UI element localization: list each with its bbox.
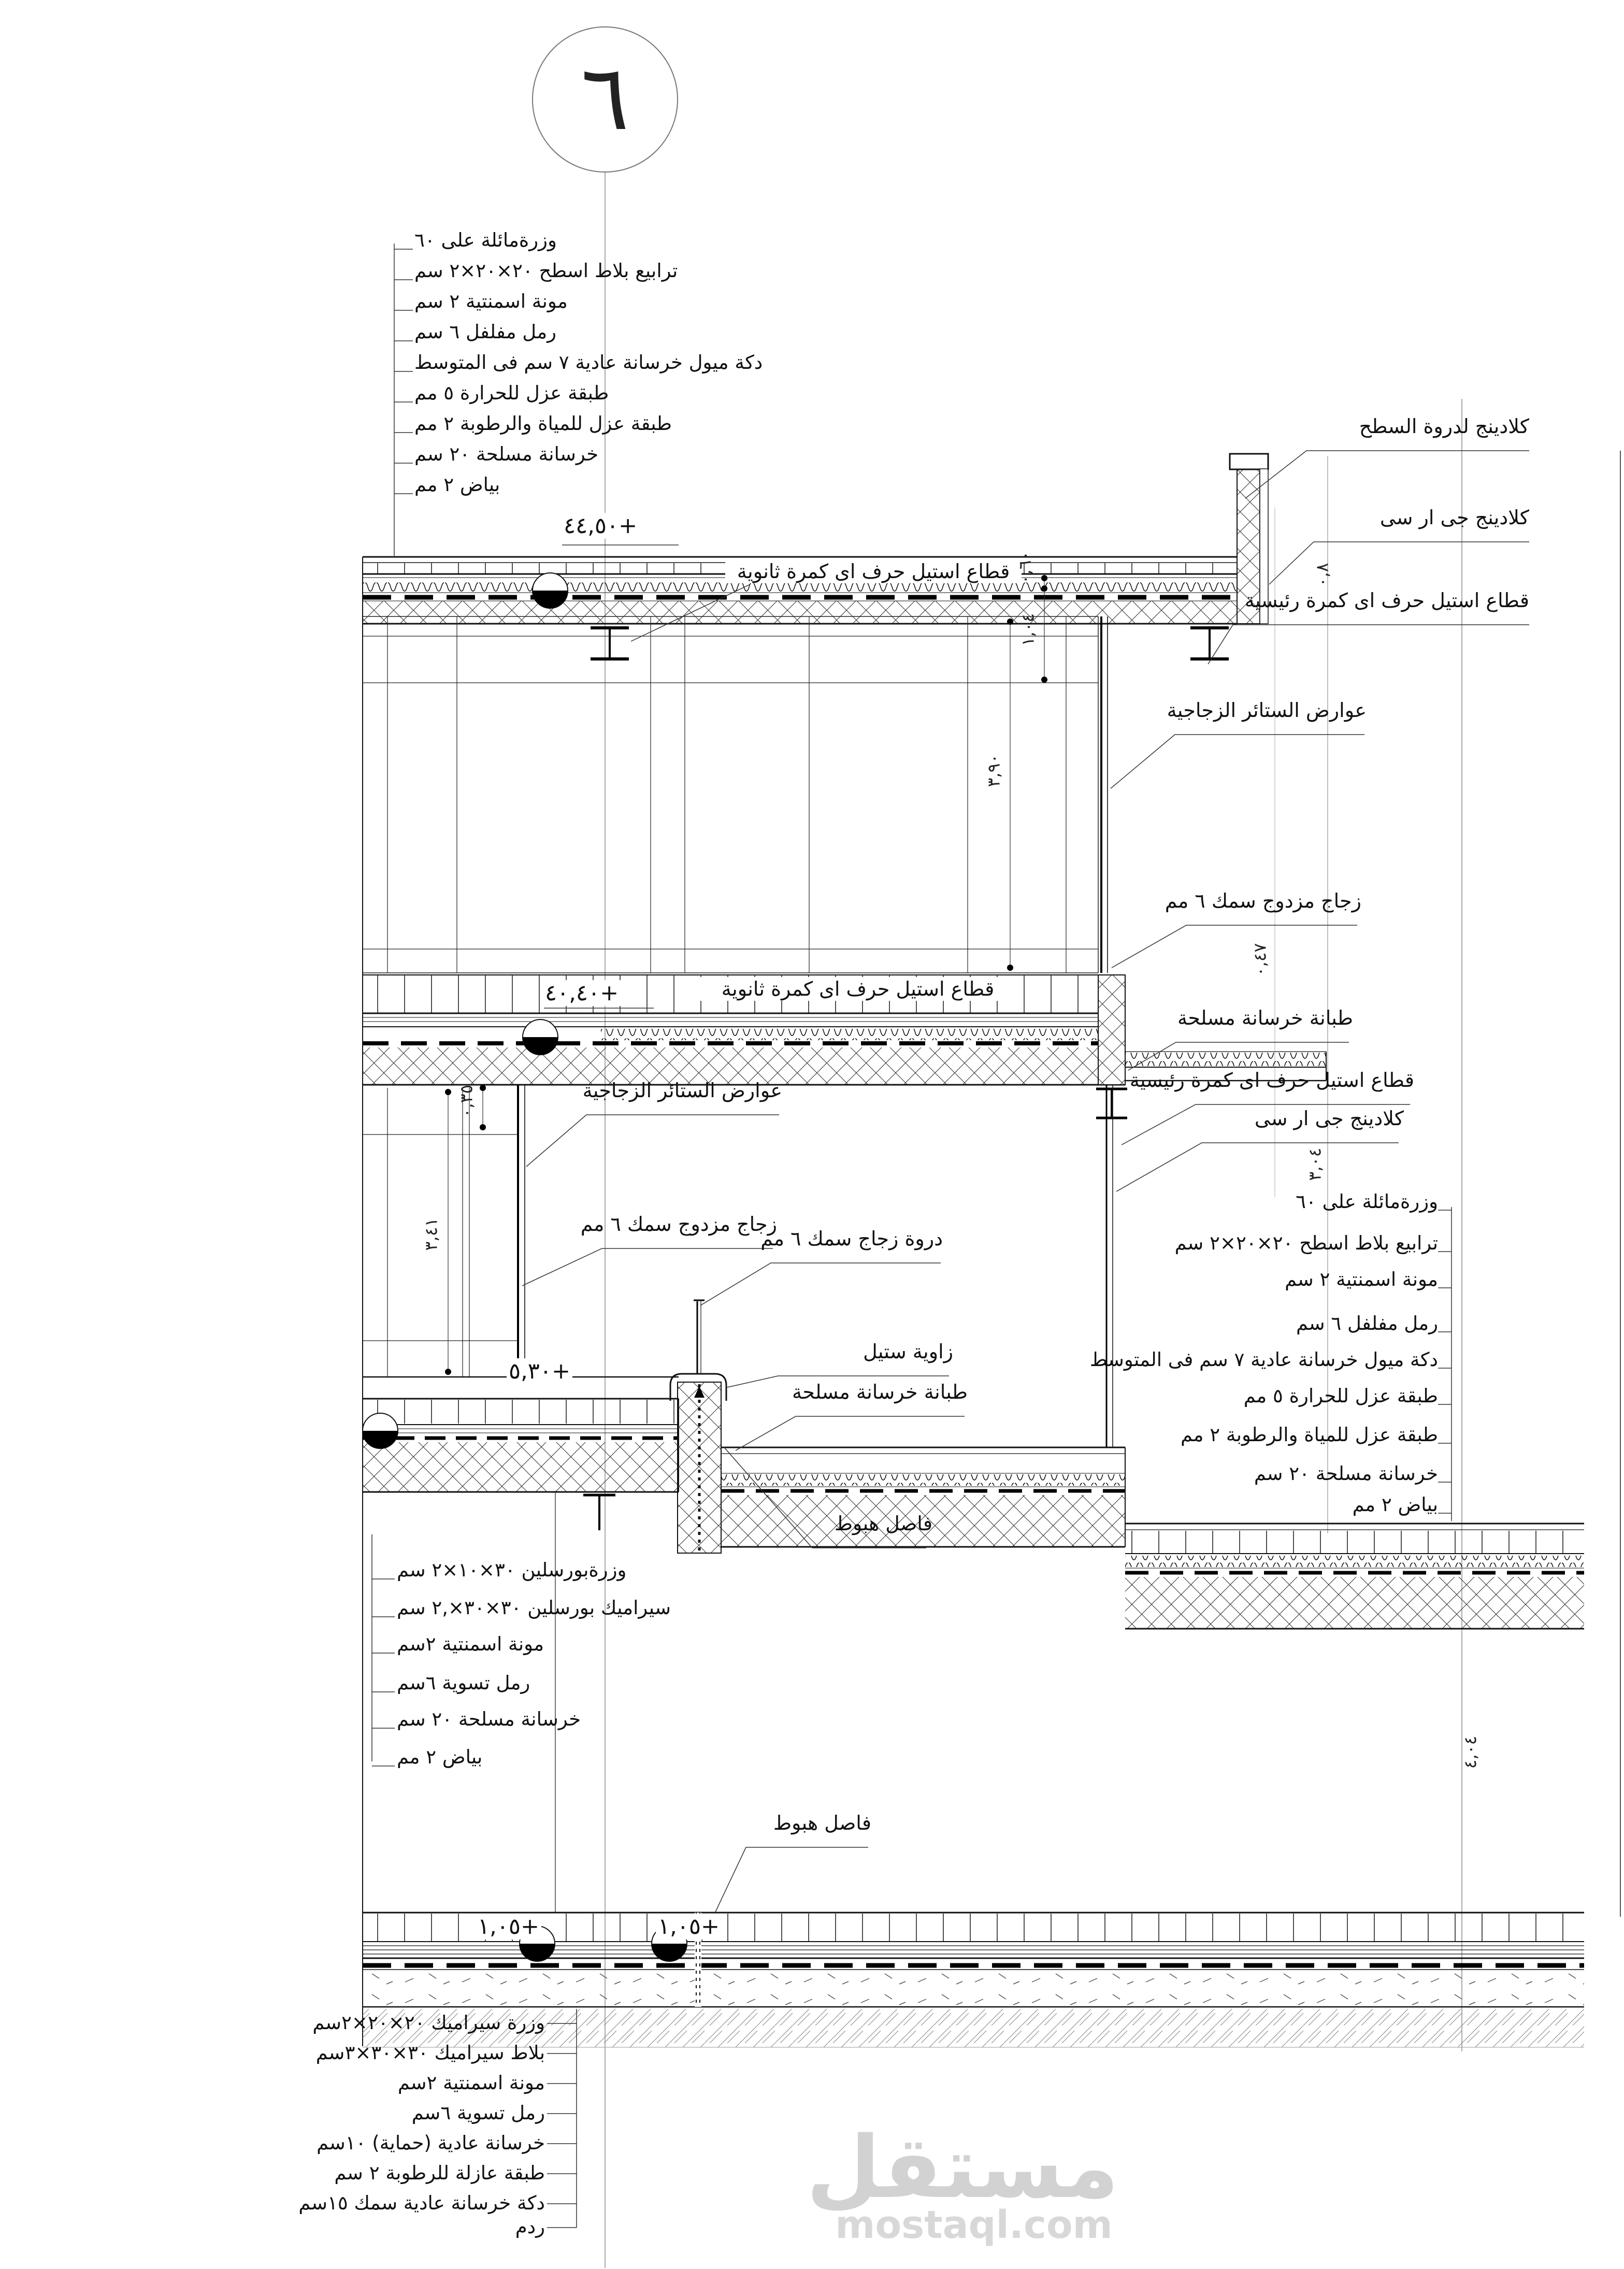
- level-ground-a: ١,٠٥+: [476, 1914, 541, 1940]
- roof-steel-beams: [591, 628, 1229, 659]
- roof-layer-line: طبقة عزل للمياة والرطوبة ٢ مم: [414, 412, 672, 435]
- ground-layer-line: رمل تسوية ٦سم: [255, 2102, 545, 2124]
- callout-mullions-roof: عوارض الستائر الزجاجية: [1159, 698, 1367, 722]
- roof-layer-line: رمل مفلفل ٦ سم: [414, 321, 556, 343]
- roof-layer-line: مونة اسمنتية ٢ سم: [414, 290, 568, 313]
- ground-layer-line: مونة اسمنتية ٢سم: [255, 2072, 545, 2094]
- terrace-upstand: [670, 1300, 726, 1553]
- porcelain-layer-line: خرسانة مسلحة ٢٠ سم: [397, 1708, 581, 1731]
- dim-head-height: ١,٠٤: [1018, 596, 1038, 664]
- roof-layer-line: وزرةمائلة على ٦٠: [414, 229, 557, 252]
- dim-lower-wall: ٣,٤١: [421, 1201, 441, 1268]
- level-roof: ٤٤,٥٠+: [562, 513, 639, 539]
- roof-layer-line: طبقة عزل للحرارة ٥ مم: [414, 382, 609, 405]
- terrace-layer-line: وزرةمائلة على ٦٠: [1086, 1190, 1438, 1213]
- level-marker-icon: [363, 1413, 398, 1448]
- callout-secondary-beam-mid: قطاع استيل حرف اى كمرة ثانوية: [699, 977, 1016, 1001]
- porcelain-layer-line: سيراميك بورسلين ٣٠×٣٠×,٢ سم: [397, 1597, 671, 1619]
- porcelain-layer-line: رمل تسوية ٦سم: [397, 1672, 530, 1694]
- terrace-layer-line: طبقة عزل للحرارة ٥ مم: [1086, 1385, 1438, 1408]
- level-marker-icon: [533, 573, 568, 608]
- lower-interior-slab: [363, 1399, 679, 1530]
- callout-mullions-mid: عوارض الستائر الزجاجية: [580, 1079, 782, 1102]
- callout-cladding-grc-roof: كلادينج جى ار سى: [1270, 506, 1529, 529]
- terrace-layer-line: خرسانة مسلحة ٢٠ سم: [1086, 1462, 1438, 1485]
- callout-screed-mid: طبانة خرسانة مسلحة: [1172, 1006, 1353, 1030]
- callout-steel-main-mid: قطاع استيل حرف اى كمرة رئيسية: [1191, 1068, 1414, 1092]
- porcelain-stack-bracket: [372, 1534, 395, 1766]
- porcelain-layer-line: وزرةبورسلين ٣٠×١٠×٢ سم: [397, 1559, 626, 1582]
- terrace-layer-line: بياض ٢ مم: [1086, 1493, 1438, 1516]
- level-mid: ٤٠,٤٠+: [543, 980, 621, 1006]
- callout-joint-terrace: فاصل هبوط: [808, 1512, 932, 1535]
- terrace-stack-bracket: [1438, 1207, 1451, 1521]
- dim-right-storey: ٤,٠٤: [1460, 1719, 1481, 1786]
- terrace-layer-line: طبقة عزل للمياة والرطوبة ٢ مم: [1086, 1424, 1438, 1446]
- dim-slab: ٠,٣٥: [456, 1068, 477, 1135]
- callout-steel-angle: زاوية ستيل: [808, 1340, 953, 1363]
- level-ground-b: ١,٠٥+: [656, 1914, 722, 1940]
- terrace-layer-line: مونة اسمنتية ٢ سم: [1086, 1268, 1438, 1291]
- roof-layer-line: خرسانة مسلحة ٢٠ سم: [414, 443, 598, 466]
- ground-layer-line: ردم: [255, 2216, 545, 2238]
- terrace-layer-line: رمل مفلفل ٦ سم: [1086, 1312, 1438, 1335]
- detail-number: ٦: [553, 46, 657, 151]
- callout-secondary-beam-roof: قطاع استيل حرف اى كمرة ثانوية: [725, 559, 1022, 583]
- callout-glass-lower: زجاج مزدوج سمك ٦ مم: [596, 1212, 777, 1236]
- roof-slab: [363, 545, 1237, 624]
- ground-layer-line: دكة خرسانة عادية سمك ١٥سم: [255, 2192, 545, 2215]
- terrace-slab: [1125, 1524, 1584, 1629]
- callout-cladding-parapet: كلادينج لدروة السطح: [1270, 414, 1529, 438]
- roof-layer-line: دكة ميول خرسانة عادية ٧ سم فى المتوسط: [414, 351, 763, 374]
- ground-layer-line: طبقة عازلة للرطوبة ٢ سم: [255, 2162, 545, 2185]
- callout-glass-parapet: دروة زجاج سمك ٦ مم: [767, 1227, 943, 1251]
- dim-parapet: ٠,٨: [1312, 541, 1332, 609]
- level-lower: ٥,٣٠+: [507, 1358, 572, 1384]
- roof-stack-bracket: [394, 243, 413, 556]
- ground-layer-line: خرسانة عادية (حماية) ١٠سم: [255, 2132, 545, 2155]
- callout-cladding-grc-mid: كلادينج جى ار سى: [1202, 1107, 1404, 1130]
- callout-joint-ground: فاصل هبوط: [742, 1811, 871, 1835]
- dim-edge-beam: ٠,٤٧: [1250, 926, 1270, 994]
- terrace-layer-line: ترابيع بلاط اسطح ٢٠×٢٠×٢ سم: [1086, 1232, 1438, 1255]
- ground-layer-line: وزرة سيراميك ٢٠×٢٠×٢سم: [255, 2012, 545, 2034]
- level-marker-icon: [523, 1019, 558, 1055]
- callout-steel-main-roof: قطاع استيل حرف اى كمرة رئيسية: [1224, 588, 1529, 612]
- dim-storey: ٣,٠٤: [1305, 1131, 1325, 1198]
- callout-glass-roof: زجاج مزدوج سمك ٦ مم: [1170, 889, 1361, 913]
- roof-layer-line: ترابيع بلاط اسطح ٢٠×٢٠×٢ سم: [414, 260, 678, 282]
- section-drawing-canvas: [0, 0, 1624, 2269]
- watermark-domain: mostaql.com: [829, 2203, 1119, 2247]
- callout-screed-lower: طبانة خرسانة مسلحة: [792, 1380, 968, 1404]
- lower-curtain-wall: [363, 557, 679, 2046]
- porcelain-layer-line: مونة اسمنتية ٢سم: [397, 1633, 544, 1656]
- roof-layer-line: بياض ٢ مم: [414, 473, 500, 496]
- dim-wall-height: ٣,٩٠: [984, 737, 1004, 805]
- ground-layer-line: بلاط سيراميك ٣٠×٣٠×٣سم: [255, 2042, 545, 2064]
- porcelain-layer-line: بياض ٢ مم: [397, 1746, 482, 1769]
- dim-beam-depth: ٠,٦٠: [1015, 534, 1035, 601]
- terrace-layer-line: دكة ميول خرسانة عادية ٧ سم فى المتوسط: [1086, 1348, 1438, 1371]
